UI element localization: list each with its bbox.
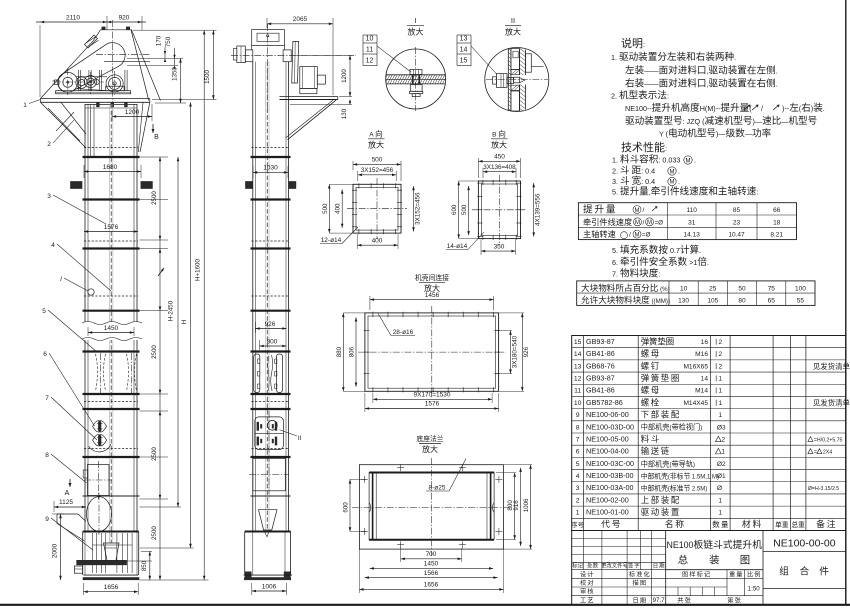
svg-text:图 样 标 记: 图 样 标 记 (682, 570, 710, 578)
svg-text:)--左(右)装.: )--左(右)装. (782, 102, 825, 114)
svg-text:共 张: 共 张 (677, 597, 691, 605)
svg-text:10.47: 10.47 (728, 232, 745, 239)
svg-text:Ø: Ø (717, 485, 723, 492)
svg-text:5. 填充系数按 0.7计算.: 5. 填充系数按 0.7计算. (612, 244, 701, 256)
svg-text:H+1600: H+1600 (194, 259, 201, 281)
svg-text:600: 600 (451, 204, 458, 215)
svg-text:=H/0.2+5.75: =H/0.2+5.75 (814, 437, 843, 443)
svg-text:1:50: 1:50 (748, 586, 761, 593)
svg-text:见发货清单: 见发货清单 (813, 362, 850, 371)
svg-text:1. 驱动装置分左装和右装两种.: 1. 驱动装置分左装和右装两种. (611, 51, 736, 63)
svg-text:备 注: 备 注 (816, 518, 836, 529)
svg-text:5: 5 (42, 308, 46, 315)
svg-text:916: 916 (513, 500, 520, 511)
svg-text:16: 16 (701, 339, 709, 346)
svg-text:设 计: 设 计 (580, 570, 594, 578)
svg-text:75: 75 (768, 285, 776, 292)
svg-text:上 部 装 配: 上 部 装 配 (641, 495, 680, 505)
svg-text:2: 2 (722, 461, 726, 468)
svg-text:放大: 放大 (505, 27, 521, 37)
svg-text:右装——面对进料口,驱动装置在右侧.: 右装——面对进料口,驱动装置在右侧. (625, 78, 778, 90)
svg-text:14: 14 (460, 47, 468, 54)
svg-text:2: 2 (719, 339, 723, 346)
svg-text:GB93-87: GB93-87 (586, 374, 615, 383)
svg-text:65: 65 (768, 298, 776, 305)
svg-text:9: 9 (576, 412, 580, 419)
svg-text:2000: 2000 (52, 543, 59, 558)
svg-text:100: 100 (795, 285, 806, 292)
svg-text:图: 图 (740, 555, 750, 567)
svg-text:序号: 序号 (571, 520, 584, 529)
svg-text:/: / (629, 232, 631, 239)
svg-text:500: 500 (322, 203, 329, 214)
svg-text:1: 1 (719, 400, 723, 407)
svg-text:55: 55 (797, 298, 805, 305)
svg-text:=Ø: =Ø (642, 232, 651, 239)
svg-text:10: 10 (366, 36, 374, 43)
svg-text:H: H (181, 320, 188, 324)
svg-text:描 图: 描 图 (633, 579, 647, 587)
svg-text:放大: 放大 (408, 27, 424, 37)
svg-text:GB41-86: GB41-86 (586, 349, 615, 358)
svg-text:3X152=456: 3X152=456 (414, 192, 421, 225)
svg-text:标 准 化: 标 准 化 (629, 570, 650, 578)
svg-text:5: 5 (576, 461, 580, 468)
svg-text:2: 2 (47, 141, 51, 148)
svg-text:数 量: 数 量 (712, 520, 729, 529)
svg-text:机壳间连接: 机壳间连接 (415, 273, 449, 282)
svg-text:牵引件线速度: 牵引件线速度 (583, 217, 632, 227)
svg-text:合: 合 (800, 566, 810, 578)
svg-text:.: . (678, 179, 680, 186)
svg-text:1566: 1566 (424, 570, 439, 577)
svg-text:15: 15 (460, 58, 468, 65)
svg-text:/: / (761, 104, 763, 113)
svg-text:1656: 1656 (104, 584, 119, 591)
svg-text:NE100-04-00: NE100-04-00 (586, 447, 629, 456)
svg-text:日 期: 日 期 (653, 562, 665, 569)
svg-text:NE100-03C-00: NE100-03C-00 (586, 459, 634, 468)
svg-text:下 部 装 配: 下 部 装 配 (641, 410, 680, 420)
svg-text:11: 11 (366, 47, 373, 54)
svg-text:中部机壳(带检视门): 中部机壳(带检视门) (641, 423, 703, 432)
svg-text:单重: 单重 (775, 520, 789, 529)
svg-text:组: 组 (779, 566, 789, 578)
svg-text:A: A (65, 490, 70, 497)
svg-text:1006: 1006 (523, 498, 530, 512)
svg-text:2. 斗 距: 0.4: 2. 斗 距: 0.4 (612, 166, 655, 177)
svg-text:8-ø25: 8-ø25 (429, 485, 446, 492)
svg-text:400: 400 (335, 203, 342, 214)
svg-text:第 张: 第 张 (727, 597, 741, 605)
svg-text:500: 500 (461, 204, 468, 215)
svg-text:25: 25 (709, 285, 717, 292)
svg-text:1125: 1125 (59, 499, 73, 506)
svg-text:M: M (686, 159, 691, 165)
svg-text:4X139=556: 4X139=556 (535, 193, 542, 226)
svg-text:工 艺: 工 艺 (580, 597, 594, 605)
svg-text:见发货清单: 见发货清单 (813, 398, 850, 407)
svg-text:总重: 总重 (791, 520, 805, 529)
svg-text:驱 动 装 置: 驱 动 装 置 (641, 507, 680, 517)
svg-text:10: 10 (680, 285, 688, 292)
svg-text:1: 1 (719, 388, 723, 395)
svg-text:M: M (647, 220, 652, 226)
svg-text:Ø=H-3.15/2.5: Ø=H-3.15/2.5 (808, 486, 839, 492)
svg-text:M: M (635, 208, 640, 214)
svg-text:2500: 2500 (151, 191, 158, 205)
svg-text:14-ø14: 14-ø14 (447, 243, 468, 250)
svg-text:2: 2 (576, 497, 580, 504)
svg-text:I: I (414, 16, 416, 25)
svg-text:800: 800 (267, 338, 278, 345)
svg-text:3X152=456: 3X152=456 (361, 167, 394, 174)
svg-text:926: 926 (523, 346, 530, 357)
svg-text:2. 机型表示法:: 2. 机型表示法: (611, 90, 669, 102)
svg-text:2500: 2500 (151, 447, 158, 461)
svg-text:M16X65: M16X65 (683, 363, 708, 370)
svg-text:9X170=1530: 9X170=1530 (413, 392, 450, 399)
svg-text:GB41-86: GB41-86 (586, 386, 615, 395)
svg-text:8.21: 8.21 (770, 232, 783, 239)
svg-text:NE100-01-00: NE100-01-00 (586, 508, 629, 517)
svg-text:130: 130 (341, 108, 348, 119)
svg-text:10: 10 (574, 400, 582, 407)
svg-text:2: 2 (719, 351, 723, 358)
svg-text:驱动装置型号: JZQ (减速机型号)—速比—机型号: 驱动装置型号: JZQ (减速机型号)—速比—机型号 (625, 115, 817, 127)
svg-text:/: / (643, 207, 645, 214)
svg-text:11: 11 (574, 388, 581, 395)
svg-text:13: 13 (574, 363, 582, 370)
svg-text:2500: 2500 (151, 345, 158, 359)
svg-text:80: 80 (738, 298, 746, 305)
svg-text:926: 926 (265, 321, 276, 328)
svg-text:螺 母: 螺 母 (641, 385, 659, 395)
svg-text:1576: 1576 (104, 224, 119, 231)
svg-text:1200: 1200 (341, 69, 348, 83)
svg-text:M: M (635, 232, 640, 238)
svg-text:12-ø14: 12-ø14 (321, 237, 342, 244)
svg-text:8: 8 (45, 452, 49, 459)
svg-text:85: 85 (733, 207, 741, 214)
svg-text:放大: 放大 (422, 444, 438, 454)
svg-text:弹簧垫圈: 弹簧垫圈 (641, 336, 675, 346)
svg-text:M14: M14 (695, 388, 708, 395)
svg-text:装: 装 (709, 554, 719, 567)
svg-text:3. 斗 宽: 0.4: 3. 斗 宽: 0.4 (612, 175, 655, 187)
svg-text:比 例: 比 例 (747, 570, 761, 578)
svg-text:GB5782-86: GB5782-86 (586, 398, 623, 407)
svg-text:12: 12 (366, 58, 374, 65)
svg-text:6. 牵引件安全系数 >1倍.: 6. 牵引件安全系数 >1倍. (612, 256, 709, 268)
svg-text:I: I (60, 276, 62, 283)
svg-text:放大: 放大 (491, 140, 507, 150)
svg-text:8: 8 (576, 424, 580, 431)
svg-text:66: 66 (773, 207, 781, 214)
svg-text:GB68-76: GB68-76 (586, 361, 615, 370)
svg-text:左装——面对进料口,驱动装置在左侧.: 左装——面对进料口,驱动装置在左侧. (625, 65, 778, 77)
svg-text:6: 6 (576, 449, 580, 456)
svg-text:110: 110 (687, 207, 698, 214)
svg-text:14: 14 (574, 351, 582, 358)
svg-text:NE100-03B-00: NE100-03B-00 (586, 471, 634, 480)
svg-text:1576: 1576 (425, 401, 440, 408)
svg-text:1: 1 (722, 473, 726, 480)
svg-text:12: 12 (574, 376, 582, 383)
svg-text:名 称: 名 称 (665, 518, 685, 529)
svg-text:2110: 2110 (66, 15, 80, 22)
svg-text:1: 1 (719, 376, 723, 383)
svg-text:/: / (643, 219, 645, 226)
svg-text:M14X45: M14X45 (683, 400, 708, 407)
svg-text:750: 750 (165, 36, 172, 47)
svg-text:2: 2 (719, 363, 723, 370)
svg-text:5. 提升量,牵引件线速度和主轴转速:: 5. 提升量,牵引件线速度和主轴转速: (612, 186, 758, 198)
svg-text:NE100-03A-00: NE100-03A-00 (586, 483, 634, 492)
svg-text:输 送 链: 输 送 链 (641, 446, 670, 456)
svg-text:件: 件 (819, 566, 829, 578)
svg-text:M: M (670, 170, 675, 176)
svg-text:放大: 放大 (368, 140, 384, 150)
svg-text:螺 母: 螺 母 (641, 349, 659, 359)
svg-text:GB93-87: GB93-87 (586, 337, 615, 346)
svg-text:13: 13 (460, 36, 468, 43)
svg-text:1. 料斗容积: 0.033: 1. 料斗容积: 0.033 (612, 154, 680, 166)
svg-text:NE100-03D-00: NE100-03D-00 (586, 422, 634, 431)
svg-text:重 量: 重 量 (729, 570, 743, 578)
svg-text:4: 4 (51, 242, 55, 249)
svg-text:弹 簧 垫 圈: 弹 簧 垫 圈 (641, 373, 680, 383)
svg-text:NE100-05-00: NE100-05-00 (586, 434, 629, 443)
svg-text:806: 806 (349, 346, 356, 357)
svg-text:97.7: 97.7 (653, 597, 666, 604)
svg-text:450: 450 (494, 154, 505, 161)
svg-text:1030: 1030 (263, 165, 278, 172)
svg-text:M16: M16 (695, 351, 708, 358)
svg-text:170: 170 (156, 35, 163, 46)
svg-text:6: 6 (43, 351, 47, 358)
svg-text:材 料: 材 料 (742, 518, 762, 529)
svg-text:130: 130 (678, 298, 689, 305)
svg-text:总: 总 (678, 554, 688, 567)
svg-text:3: 3 (576, 485, 580, 492)
svg-text:螺 栓: 螺 栓 (641, 397, 660, 407)
svg-text:15: 15 (574, 339, 582, 346)
svg-text:500: 500 (372, 157, 383, 164)
svg-text:Y (电动机型号)—级数—功率: Y (电动机型号)—级数—功率 (659, 128, 772, 140)
svg-text:1: 1 (719, 412, 723, 419)
svg-text:=Ø: =Ø (655, 219, 664, 226)
svg-text:更改文件号: 更改文件号 (601, 561, 629, 569)
svg-text:1680: 1680 (103, 164, 118, 171)
svg-text:600: 600 (343, 502, 350, 513)
svg-text:700: 700 (426, 551, 437, 558)
svg-text:II: II (298, 435, 302, 442)
svg-text:料 斗: 料 斗 (641, 434, 659, 444)
svg-text:.: . (694, 158, 696, 165)
svg-text:主轴转速: 主轴转速 (583, 229, 616, 239)
svg-text:说明:: 说明: (621, 36, 645, 50)
svg-text:1: 1 (576, 510, 580, 517)
svg-text:23: 23 (733, 219, 741, 226)
svg-text:50: 50 (738, 285, 746, 292)
svg-text:技术性能:: 技术性能: (621, 140, 667, 154)
svg-text:提 升 量: 提 升 量 (583, 204, 616, 216)
svg-text:350: 350 (494, 243, 505, 250)
svg-text:3: 3 (722, 424, 726, 431)
svg-text:2: 2 (722, 436, 726, 443)
svg-text:标记: 标记 (572, 561, 583, 569)
svg-text:400: 400 (372, 237, 383, 244)
svg-text:II: II (511, 16, 515, 25)
svg-text:1500: 1500 (204, 70, 211, 84)
svg-text:.: . (678, 169, 680, 176)
svg-text:920: 920 (119, 15, 130, 22)
svg-text:1006: 1006 (262, 583, 277, 590)
svg-text:中部机壳(带导轨): 中部机壳(带导轨) (641, 459, 695, 468)
svg-text:1450: 1450 (104, 325, 119, 332)
svg-text:1450: 1450 (424, 561, 439, 568)
svg-text:2X4: 2X4 (823, 450, 832, 456)
svg-text:7. 物料块度:: 7. 物料块度: (612, 268, 660, 280)
svg-text:H-2450: H-2450 (168, 300, 175, 321)
svg-text:大块物料所占百分比 (%): 大块物料所占百分比 (%) (581, 282, 670, 293)
svg-text:2065: 2065 (293, 16, 308, 23)
svg-text:NE100板链斗式提升机: NE100板链斗式提升机 (667, 538, 763, 551)
svg-text:M: M (635, 220, 640, 226)
svg-text:14.13: 14.13 (684, 232, 701, 239)
svg-text:850: 850 (141, 560, 148, 571)
svg-text:底座法兰: 底座法兰 (416, 434, 443, 443)
svg-text:签 字: 签 字 (628, 561, 640, 569)
svg-text:28-ø16: 28-ø16 (393, 329, 414, 336)
svg-text:处数: 处数 (587, 561, 598, 569)
svg-text:日 期: 日 期 (633, 597, 647, 605)
svg-text:M: M (670, 180, 675, 186)
svg-text:14: 14 (701, 376, 709, 383)
svg-text:880: 880 (336, 346, 343, 357)
svg-text:9: 9 (45, 516, 49, 523)
svg-text:NE100-06-00: NE100-06-00 (586, 410, 629, 419)
svg-text:校 对: 校 对 (580, 579, 594, 587)
svg-text:代 号: 代 号 (601, 519, 621, 529)
svg-text:NE100-00-00: NE100-00-00 (773, 538, 836, 550)
svg-text:7: 7 (576, 436, 580, 443)
svg-text:螺 钉: 螺 钉 (641, 361, 660, 371)
svg-text:1: 1 (719, 497, 723, 504)
svg-text:2500: 2500 (151, 526, 158, 540)
svg-text:3X136=408: 3X136=408 (483, 164, 516, 171)
svg-text:=: = (814, 450, 817, 456)
svg-text:105: 105 (707, 298, 718, 305)
svg-text:B: B (154, 134, 159, 141)
svg-text:1: 1 (719, 510, 723, 517)
svg-text:审 核: 审 核 (580, 588, 594, 596)
svg-text:NE100--提升机高度H(M)--提升量(: NE100--提升机高度H(M)--提升量( (625, 102, 752, 114)
svg-text:3X180=540: 3X180=540 (511, 335, 518, 368)
svg-text:NE100-02-00: NE100-02-00 (586, 495, 629, 504)
svg-text:1350: 1350 (172, 67, 179, 81)
svg-text:1656: 1656 (424, 582, 439, 589)
svg-text:7: 7 (45, 395, 49, 402)
svg-text:31: 31 (688, 219, 696, 226)
svg-text:1: 1 (23, 102, 27, 109)
svg-text:1456: 1456 (425, 292, 440, 299)
svg-text:1: 1 (722, 449, 726, 456)
svg-text:18: 18 (773, 219, 781, 226)
svg-text:3: 3 (47, 193, 51, 200)
svg-text:4: 4 (576, 473, 580, 480)
